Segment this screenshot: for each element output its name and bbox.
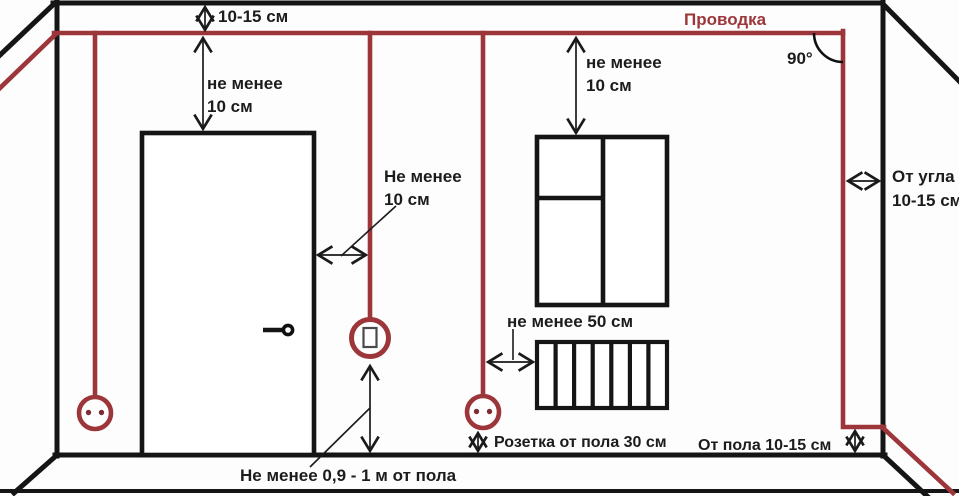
wire-right-drop	[843, 31, 884, 427]
floor-left-perspective-line	[14, 455, 57, 493]
light-switch-icon	[352, 320, 389, 357]
label-door-clearance-1: Не менее	[384, 167, 462, 186]
wire-left-wall-segment	[0, 34, 56, 88]
label-wire-to-window-top-2: 10 см	[586, 76, 632, 95]
ceiling-right-perspective-line	[883, 4, 959, 81]
ceiling-left-perspective-line	[0, 2, 56, 55]
label-ceiling-offset: 10-15 см	[218, 7, 288, 26]
label-switch-floor-height: Не менее 0,9 - 1 м от пола	[240, 466, 457, 485]
label-radiator-clearance: не менее 50 см	[507, 312, 633, 331]
label-wire-to-window-top-1: не менее	[586, 53, 662, 72]
label-wiring-title: Проводка	[684, 10, 767, 29]
label-corner-offset-2: 10-15 см	[892, 191, 959, 210]
label-wire-to-door-top-1: не менее	[207, 74, 283, 93]
socket-middle-icon	[467, 396, 499, 428]
door	[142, 133, 314, 455]
leader-switch-height	[310, 408, 370, 467]
window	[537, 137, 667, 305]
wiring-diagram: 10-15 см не менее 10 см не менее 10 см П…	[0, 0, 959, 496]
label-socket-floor-height: Розетка от пола 30 см	[494, 434, 667, 451]
radiator	[537, 342, 667, 408]
label-wire-to-door-top-2: 10 см	[207, 97, 253, 116]
label-door-clearance-2: 10 см	[384, 190, 430, 209]
right-angle-arc	[814, 33, 843, 62]
label-right-angle: 90°	[787, 49, 813, 68]
wire-right-wall-segment	[882, 427, 953, 493]
label-wire-floor-offset: От пола 10-15 см	[698, 437, 831, 454]
diagram-canvas: 10-15 см не менее 10 см не менее 10 см П…	[0, 0, 959, 496]
socket-left-icon	[79, 397, 111, 429]
door-outline	[142, 133, 314, 455]
label-corner-offset-1: От угла	[892, 167, 955, 186]
